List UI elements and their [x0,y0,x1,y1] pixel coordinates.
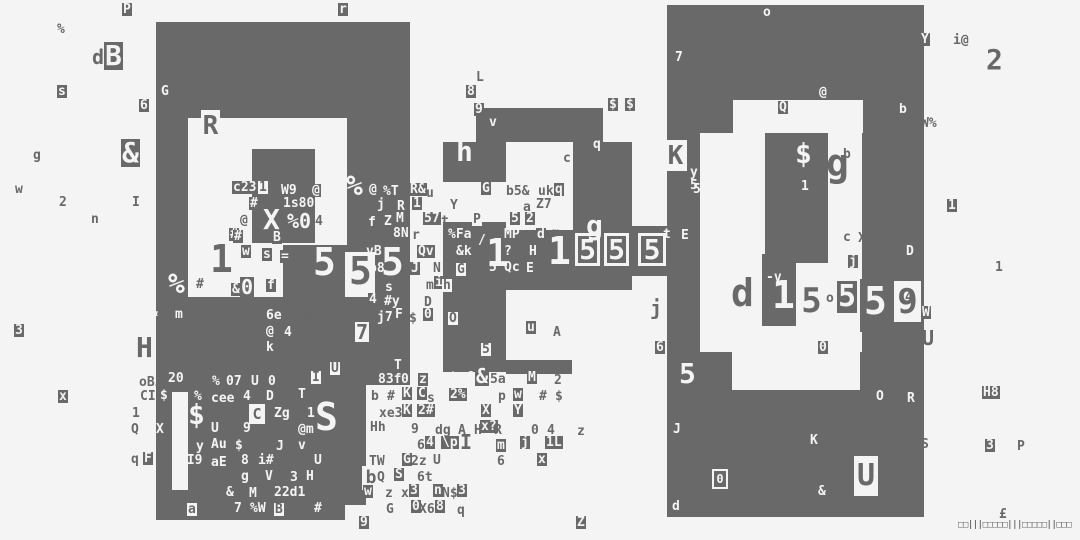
glyph: w [15,183,23,196]
glyph: s [385,281,393,294]
glyph: U [251,375,259,388]
glyph: $ [235,439,243,452]
glyph: G [456,263,466,276]
glyph: Z [384,215,392,228]
glyph: i# [258,454,274,467]
glyph: f [266,279,276,292]
glyph: 5 [864,282,887,320]
glyph: A [553,326,561,339]
glyph: = [280,250,290,263]
glyph: H [529,245,537,258]
glyph: f [368,216,376,229]
glyph: I [311,371,321,384]
glyph: 6I9 [179,454,202,467]
glyph: / [478,234,486,247]
glyph: r [179,424,187,437]
glyph: 1 [412,197,422,210]
glyph: n [91,213,99,226]
glyph: U [314,454,322,467]
glyph: 1 [210,240,233,278]
glyph: # [387,390,395,403]
glyph: q [554,183,564,196]
glyph: m [175,308,183,321]
glyph: # [314,502,322,515]
framed-glyph: 0 [712,469,728,489]
glyph: %T [383,185,399,198]
glyph: 0 [531,424,539,437]
keycap-glyph: 5 [638,233,666,266]
gray-block [156,22,410,118]
glyph: D [266,390,274,403]
glyph: P [472,213,482,226]
glyph: q [131,453,139,466]
glyph: b5& [506,185,529,198]
glyph: v [489,116,497,129]
glyph: 8 [435,500,445,513]
glyph: % [346,172,363,200]
glyph: x [537,453,547,466]
glyph: G [386,503,394,516]
gray-block [443,142,506,182]
glyph: E [681,229,689,242]
glyph: v [298,439,306,452]
glyph: Z [576,516,586,529]
glyph: d [731,274,754,312]
glyph: O [448,312,458,325]
glyph: aE [211,456,227,469]
glyph: 4 [425,436,435,449]
keycap-glyph: 5 [834,278,860,316]
glyph: &k [456,245,472,258]
glyph: 4 [905,291,913,304]
boxed-glyph: C [249,404,265,424]
glyph: Y [450,199,458,212]
glyph: cee [211,392,234,405]
glyph: $ [625,98,635,111]
boxed-glyph: 5 [799,281,824,321]
glyph: M [527,371,537,384]
glyph: c23 [232,181,257,194]
glyph: U [922,328,934,348]
glyph: Q [377,471,385,484]
glyph: $ [795,140,812,168]
glyph: q [593,138,601,151]
glyph: D [905,245,915,258]
glyph: 3 [179,438,187,451]
glyph: W [921,306,931,319]
glyph: 20 [168,372,184,385]
glyph: k [265,341,275,354]
glyph: @ [265,325,275,338]
glyph: $ [188,401,205,429]
glyph: Y [513,404,523,417]
glyph: xe3 [379,407,402,420]
glyph: L [476,71,484,84]
gray-block [156,297,410,385]
glyph: a [187,503,197,516]
keycap-glyph: 5 [604,233,629,266]
glyph: 1L [545,436,563,449]
boxed-glyph: K [664,140,687,171]
glyph: Z [314,303,331,331]
glyph: H [306,470,314,483]
block-cutout [733,100,863,133]
glyph: 2 [986,46,1003,74]
glyph: r [411,229,421,242]
glyph: 5 [313,243,336,281]
glyph: d [536,228,546,241]
glyph: M [249,487,257,500]
glyph: Q [131,423,139,436]
glyph: %W [250,502,266,515]
glyph: U [330,362,340,375]
glyph: X [858,232,866,245]
glyph: 8 [241,454,249,467]
glyph: 6 [497,455,505,468]
glyph: 3 [290,471,298,484]
glyph: CI [140,390,156,403]
glyph: 3 [409,484,419,497]
glyph: Z7 [536,198,552,211]
glyph: x [401,487,409,500]
glyph: U [433,454,441,467]
glyph: E [526,262,534,275]
glyph: 9 [474,103,484,116]
glyph: & [150,306,158,319]
glyph: U [211,422,219,435]
glyph: 2# [417,404,435,417]
glyph: j [520,436,530,449]
glyph: 5 [510,212,520,225]
glyph: X6 [419,503,435,516]
glyph: @ [240,214,248,227]
glyph: 0 [401,373,409,386]
glyph: y [196,440,204,453]
glyph: K [810,434,818,447]
glyph: h [442,279,452,292]
ascii-art-canvas: 5555RK59UbC0Pro%Yi@dB27LsG8@69$$QbvW%hqc… [0,0,1080,540]
glyph: 9 [359,516,369,529]
boxed-glyph: U [854,456,878,496]
glyph: @ [369,183,377,196]
glyph: 6 [417,439,425,452]
glyph: m [496,439,506,452]
glyph: 2 [554,374,562,387]
glyph: S [315,398,338,436]
glyph: H [136,334,153,362]
glyph: % [212,375,220,388]
glyph: & [818,485,826,498]
glyph: 1 [307,407,315,420]
glyph: 1 [132,407,140,420]
glyph: j [650,298,662,318]
glyph: R& [409,183,427,196]
glyph: b [843,148,851,161]
glyph: 1 [258,181,268,194]
glyph: 1 [772,276,795,314]
glyph: I [460,432,472,452]
glyph: 0 [240,277,254,297]
glyph: S [921,438,929,451]
glyph: 6e [265,309,283,322]
glyph: x [58,390,68,403]
glyph: Qv [417,245,435,258]
glyph: B [274,503,284,516]
glyph: @m [298,423,314,436]
glyph: J [673,423,681,436]
glyph: 83f [378,373,401,386]
glyph: %0 [286,211,312,231]
glyph: 5 [693,183,701,196]
glyph: # [196,278,204,291]
gray-block [156,118,188,245]
glyph: 7 [675,51,683,64]
glyph: b [898,103,908,116]
glyph: 4 [368,293,378,306]
glyph: w [363,485,373,498]
glyph: 2% [449,388,467,401]
barcode-strip: □□|||□□□□□|||□□□□□||□□□ [958,521,1071,530]
glyph: c [843,231,851,244]
glyph: 6 [139,99,149,112]
glyph: & [226,486,234,499]
glyph: 1 [995,261,1003,274]
glyph: Zg [274,407,290,420]
glyph: 0 [423,308,433,321]
glyph: g [33,149,41,162]
glyph: u [526,321,536,334]
gray-block [506,360,572,374]
glyph: R [494,424,502,437]
glyph: z [385,487,393,500]
glyph: X [481,404,491,417]
glyph: 3 [985,439,995,452]
boxed-glyph: R [201,110,220,142]
glyph: 9 [243,422,251,435]
glyph: J [410,262,420,275]
glyph: # [539,390,547,403]
block-cutout [345,505,410,520]
glyph: X [156,423,164,436]
glyph: 8 [467,371,475,384]
glyph: N$ [442,487,458,500]
glyph: R [907,392,915,405]
glyph: F [143,452,153,465]
glyph: 5 [489,261,497,274]
glyph: w [513,388,523,401]
glyph: g [586,212,603,240]
glyph: w [241,245,251,258]
glyph: 9 [411,423,419,436]
glyph: oBi [139,376,162,389]
glyph: Hh [370,421,386,434]
glyph: c [563,152,571,165]
glyph: P [122,3,132,16]
glyph: 7 [355,322,369,342]
glyph: 2 [525,212,535,225]
glyph: vB [366,245,382,258]
glyph: z [418,373,428,386]
glyph: B [272,231,282,244]
glyph: m [426,279,434,292]
glyph: b [371,390,379,403]
glyph: N [433,262,441,275]
glyph: S [394,468,404,481]
glyph: 3 [457,484,467,497]
glyph: 5a [490,373,506,386]
glyph: d [92,47,104,67]
glyph: s [57,85,67,98]
glyph: Au [211,438,227,451]
glyph: h [456,138,473,166]
glyph: 6 [655,341,665,354]
glyph: j [377,198,385,211]
glyph: o [826,292,834,305]
glyph: Q [778,101,788,114]
glyph: 4 [315,215,323,228]
glyph: z [577,425,585,438]
glyph: % [57,23,65,36]
glyph: $ [160,389,168,402]
glyph: TW [369,455,385,468]
glyph: B [104,42,123,70]
glyph: 5 [481,343,491,356]
glyph: W% [921,117,937,130]
glyph: I [132,196,140,209]
glyph: 4 [243,390,251,403]
glyph: F [394,308,404,321]
glyph: u [426,187,434,200]
glyph: s [262,248,272,261]
glyph: j7 [377,311,393,324]
glyph: o [283,295,291,308]
glyph: g [241,470,249,483]
glyph: p [498,390,506,403]
glyph: O [876,390,884,403]
glyph: Y [920,33,930,46]
glyph: o [763,6,771,19]
glyph: 57 [423,212,441,225]
glyph: @ [819,86,827,99]
glyph: Qc [504,261,520,274]
block-cutout [732,352,860,390]
glyph: C [417,387,427,400]
glyph: 0 [268,375,276,388]
glyph: 4 [284,326,292,339]
glyph: T [298,388,306,401]
glyph: & [121,139,140,167]
glyph: H8 [982,386,1000,399]
glyph: J [276,440,284,453]
glyph: $ [608,98,618,111]
glyph: b8 [369,262,385,275]
glyph: 22d1 [274,486,305,499]
glyph: $ [555,390,563,403]
glyph: r [338,3,348,16]
glyph: j [848,255,858,268]
glyph: \p [441,436,459,449]
glyph: 2 [59,196,67,209]
glyph: G [161,85,169,98]
glyph: & [475,366,489,386]
glyph: 5 [679,360,696,388]
glyph: # [233,230,243,243]
glyph: K [402,404,412,417]
glyph: 2z [411,455,427,468]
glyph: 1 [548,232,571,270]
glyph: 7 [234,502,242,515]
glyph: 1 [801,180,809,193]
glyph: % [168,270,185,298]
glyph: 0 [818,341,828,354]
glyph: i@ [953,34,969,47]
glyph: %Fa [448,228,471,241]
glyph: q [457,504,465,517]
glyph: 6t [417,471,433,484]
glyph: $ [409,312,417,325]
glyph: t [663,228,671,241]
glyph: $ [449,371,457,384]
glyph: 07 [226,375,242,388]
glyph: 1 [947,199,957,212]
glyph: T [394,359,402,372]
glyph: V [265,470,273,483]
glyph: P [1017,440,1025,453]
glyph: 8 [466,85,476,98]
glyph: G [481,182,491,195]
glyph: # [249,197,259,210]
glyph: 3 [14,324,24,337]
glyph: d [672,500,680,513]
glyph: K [402,387,412,400]
glyph: FE [297,310,313,323]
glyph: 8N [393,227,409,240]
glyph: M [396,212,404,225]
